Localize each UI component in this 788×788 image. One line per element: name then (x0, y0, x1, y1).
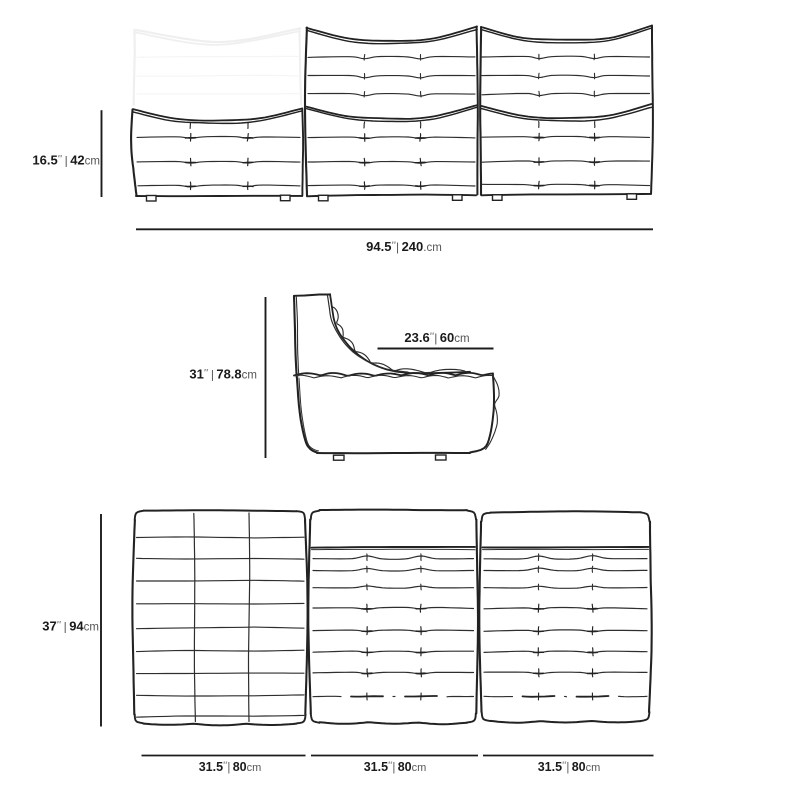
svg-text:23.6″| 60cm: 23.6″| 60cm (404, 330, 469, 345)
svg-text:31.5″| 80cm: 31.5″| 80cm (364, 760, 427, 774)
svg-text:31.5″| 80cm: 31.5″| 80cm (538, 760, 601, 774)
svg-text:37″ | 94cm: 37″ | 94cm (42, 619, 99, 634)
svg-text:16.5″ | 42cm: 16.5″ | 42cm (32, 153, 100, 168)
svg-text:94.5″| 240.cm: 94.5″| 240.cm (366, 239, 442, 254)
svg-text:31″ | 78.8cm: 31″ | 78.8cm (189, 367, 257, 382)
svg-text:31.5″| 80cm: 31.5″| 80cm (199, 760, 262, 774)
